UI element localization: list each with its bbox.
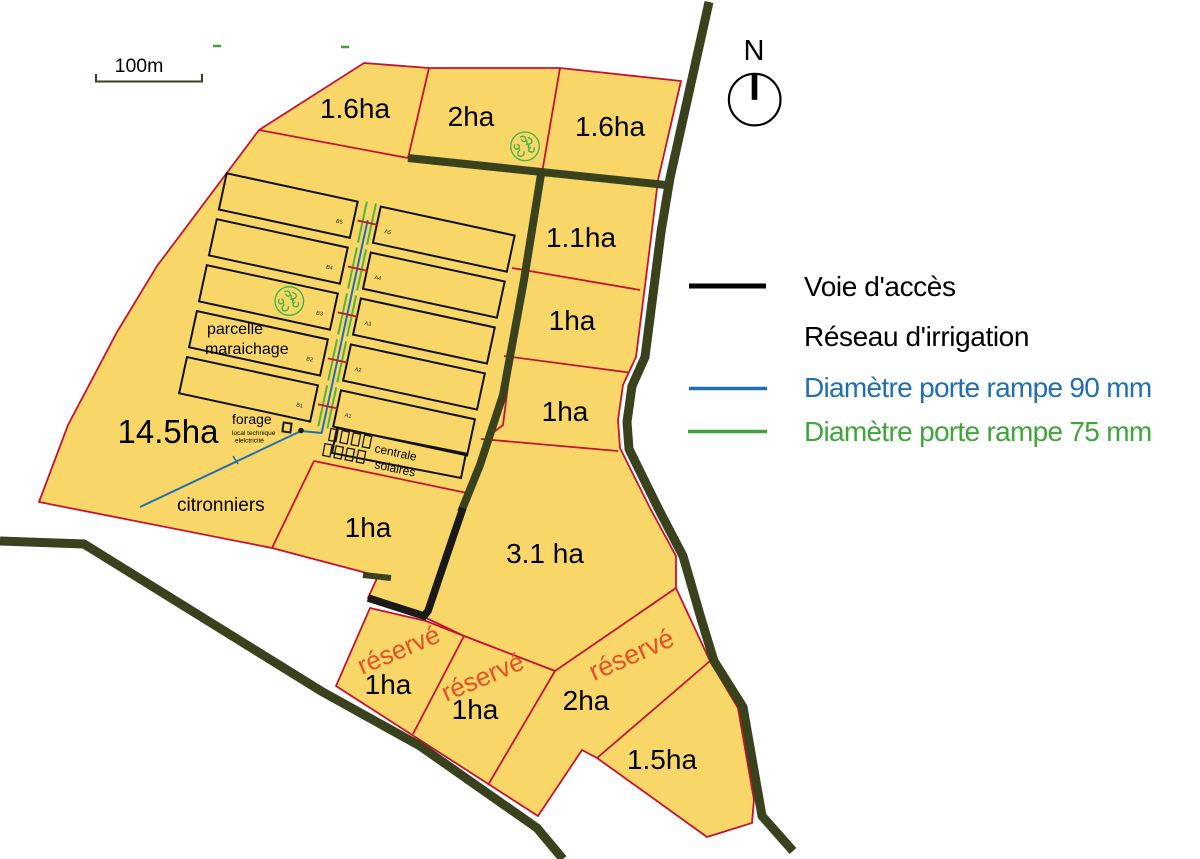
svg-text:1ha: 1ha (542, 396, 589, 427)
svg-text:1ha: 1ha (365, 669, 412, 700)
svg-text:Voie d'accès: Voie d'accès (804, 271, 956, 302)
svg-text:1.6ha: 1.6ha (320, 93, 390, 124)
svg-text:100m: 100m (115, 55, 164, 77)
svg-text:N: N (744, 35, 765, 67)
svg-text:Réseau d'irrigation: Réseau d'irrigation (804, 321, 1029, 352)
svg-text:citronniers: citronniers (177, 495, 265, 516)
svg-text:3.1 ha: 3.1 ha (506, 538, 584, 569)
svg-text:2ha: 2ha (448, 101, 495, 132)
svg-text:1ha: 1ha (549, 305, 596, 336)
svg-text:maraichage: maraichage (205, 341, 289, 358)
svg-text:parcelle: parcelle (207, 321, 263, 338)
svg-text:2ha: 2ha (563, 685, 610, 716)
svg-text:Diamètre porte rampe 90 mm: Diamètre porte rampe 90 mm (804, 372, 1151, 403)
svg-text:elelctricité: elelctricité (235, 438, 264, 445)
svg-text:forage: forage (232, 411, 272, 427)
svg-text:1ha: 1ha (452, 694, 499, 725)
svg-text:14.5ha: 14.5ha (118, 413, 220, 450)
svg-text:Diamètre porte rampe 75 mm: Diamètre porte rampe 75 mm (804, 416, 1151, 447)
svg-text:1.1ha: 1.1ha (546, 222, 616, 253)
svg-text:1.6ha: 1.6ha (575, 111, 645, 142)
svg-text:1ha: 1ha (345, 512, 392, 543)
svg-text:local technique: local technique (232, 430, 276, 437)
svg-text:1.5ha: 1.5ha (627, 744, 697, 775)
